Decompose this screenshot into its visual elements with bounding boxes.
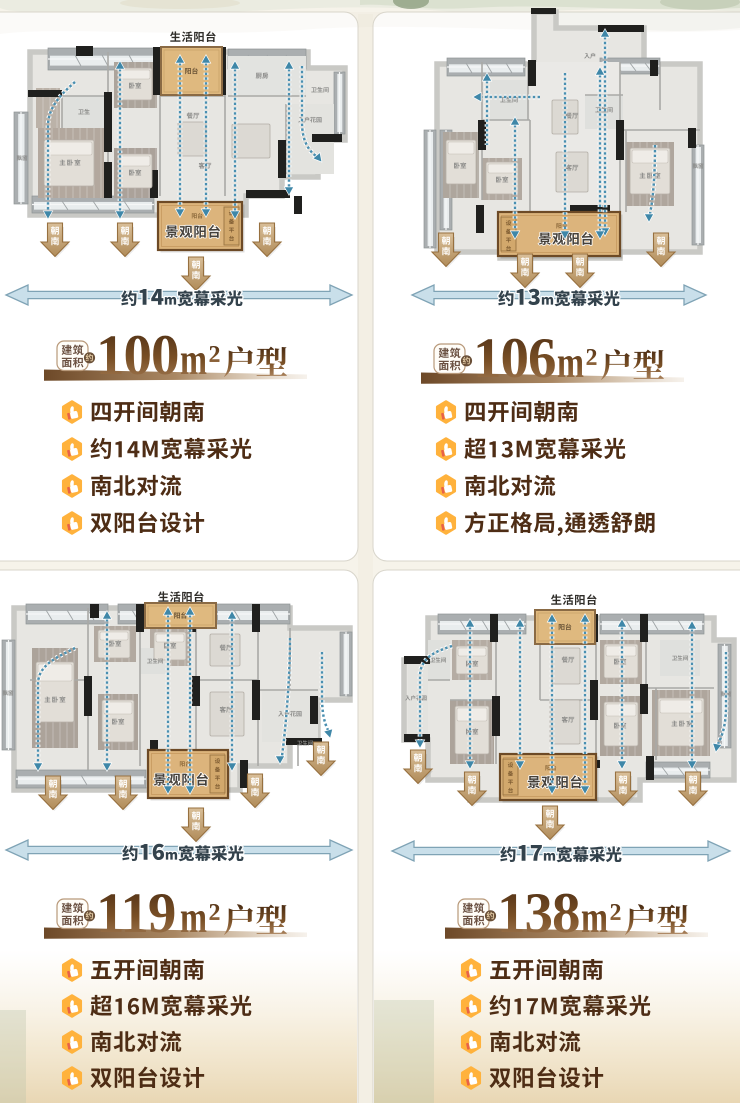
svg-text:m: m — [557, 338, 584, 387]
svg-text:119: 119 — [96, 882, 175, 945]
svg-text:138: 138 — [497, 882, 580, 945]
svg-text:2: 2 — [209, 900, 221, 926]
svg-text:106: 106 — [473, 327, 556, 390]
svg-text:m: m — [180, 335, 207, 384]
svg-text:2: 2 — [610, 900, 622, 926]
svg-text:m: m — [581, 893, 608, 942]
svg-text:m: m — [180, 893, 207, 942]
svg-text:2: 2 — [209, 342, 221, 368]
svg-text:2: 2 — [586, 345, 598, 371]
svg-text:100: 100 — [96, 324, 179, 387]
